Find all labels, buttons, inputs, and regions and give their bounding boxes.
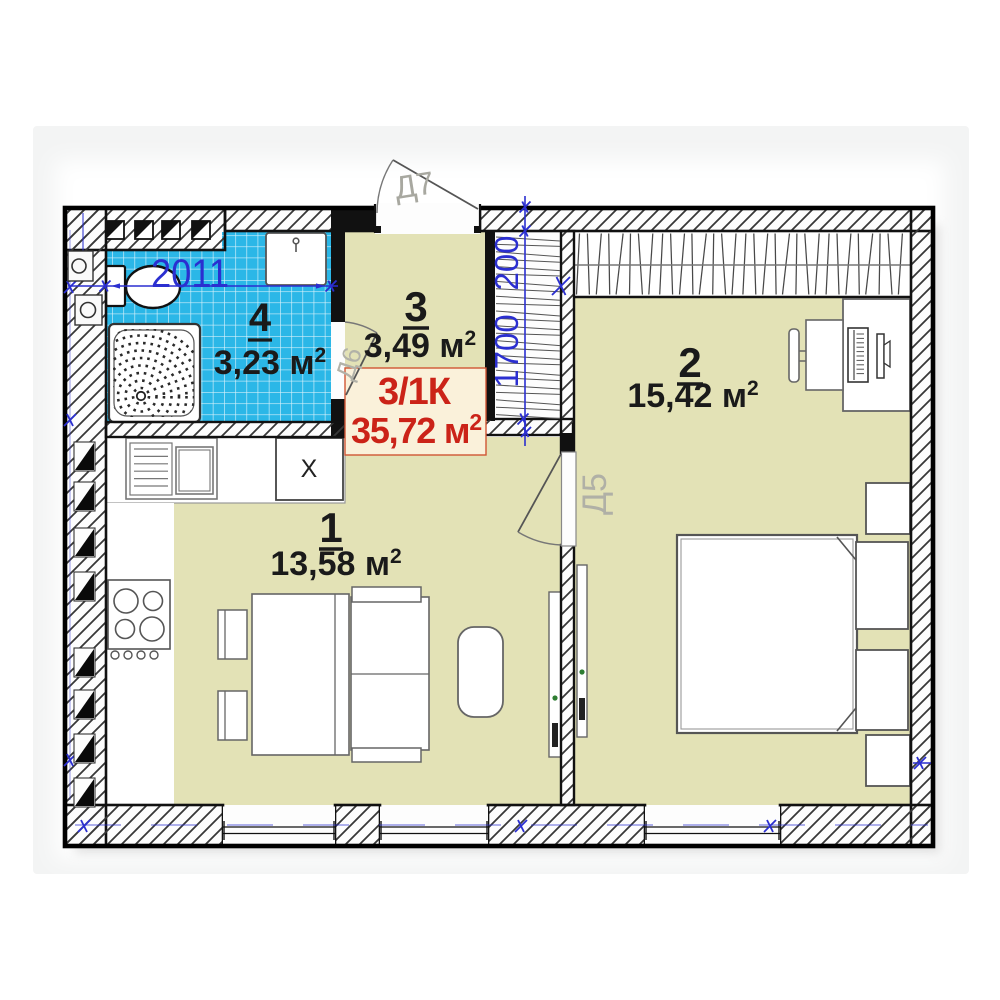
svg-text:3: 3 (404, 283, 427, 330)
svg-text:1700: 1700 (488, 314, 525, 387)
svg-text:4: 4 (249, 296, 272, 340)
svg-text:15,42 м2: 15,42 м2 (627, 377, 758, 415)
svg-text:3/1К: 3/1К (378, 371, 452, 413)
svg-text:3,49 м2: 3,49 м2 (364, 327, 476, 365)
svg-text:13,58 м2: 13,58 м2 (270, 545, 401, 583)
svg-text:Д5: Д5 (576, 473, 614, 515)
svg-text:2011: 2011 (151, 252, 229, 296)
svg-text:1: 1 (319, 504, 342, 551)
svg-text:200: 200 (488, 235, 525, 290)
svg-text:35,72 м2: 35,72 м2 (351, 409, 481, 451)
svg-text:X: X (301, 455, 318, 483)
svg-text:3,23 м2: 3,23 м2 (214, 344, 326, 382)
svg-text:Д7: Д7 (392, 164, 437, 206)
